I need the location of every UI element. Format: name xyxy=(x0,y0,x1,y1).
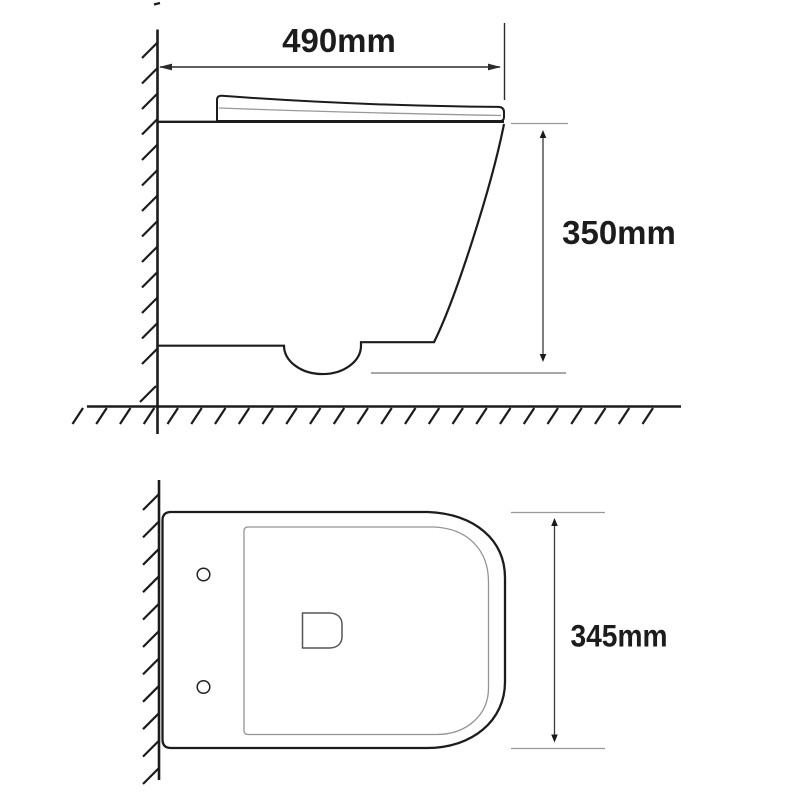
svg-text:350mm: 350mm xyxy=(562,214,676,251)
svg-text:490mm: 490mm xyxy=(282,22,396,59)
svg-text:345mm: 345mm xyxy=(571,618,668,654)
